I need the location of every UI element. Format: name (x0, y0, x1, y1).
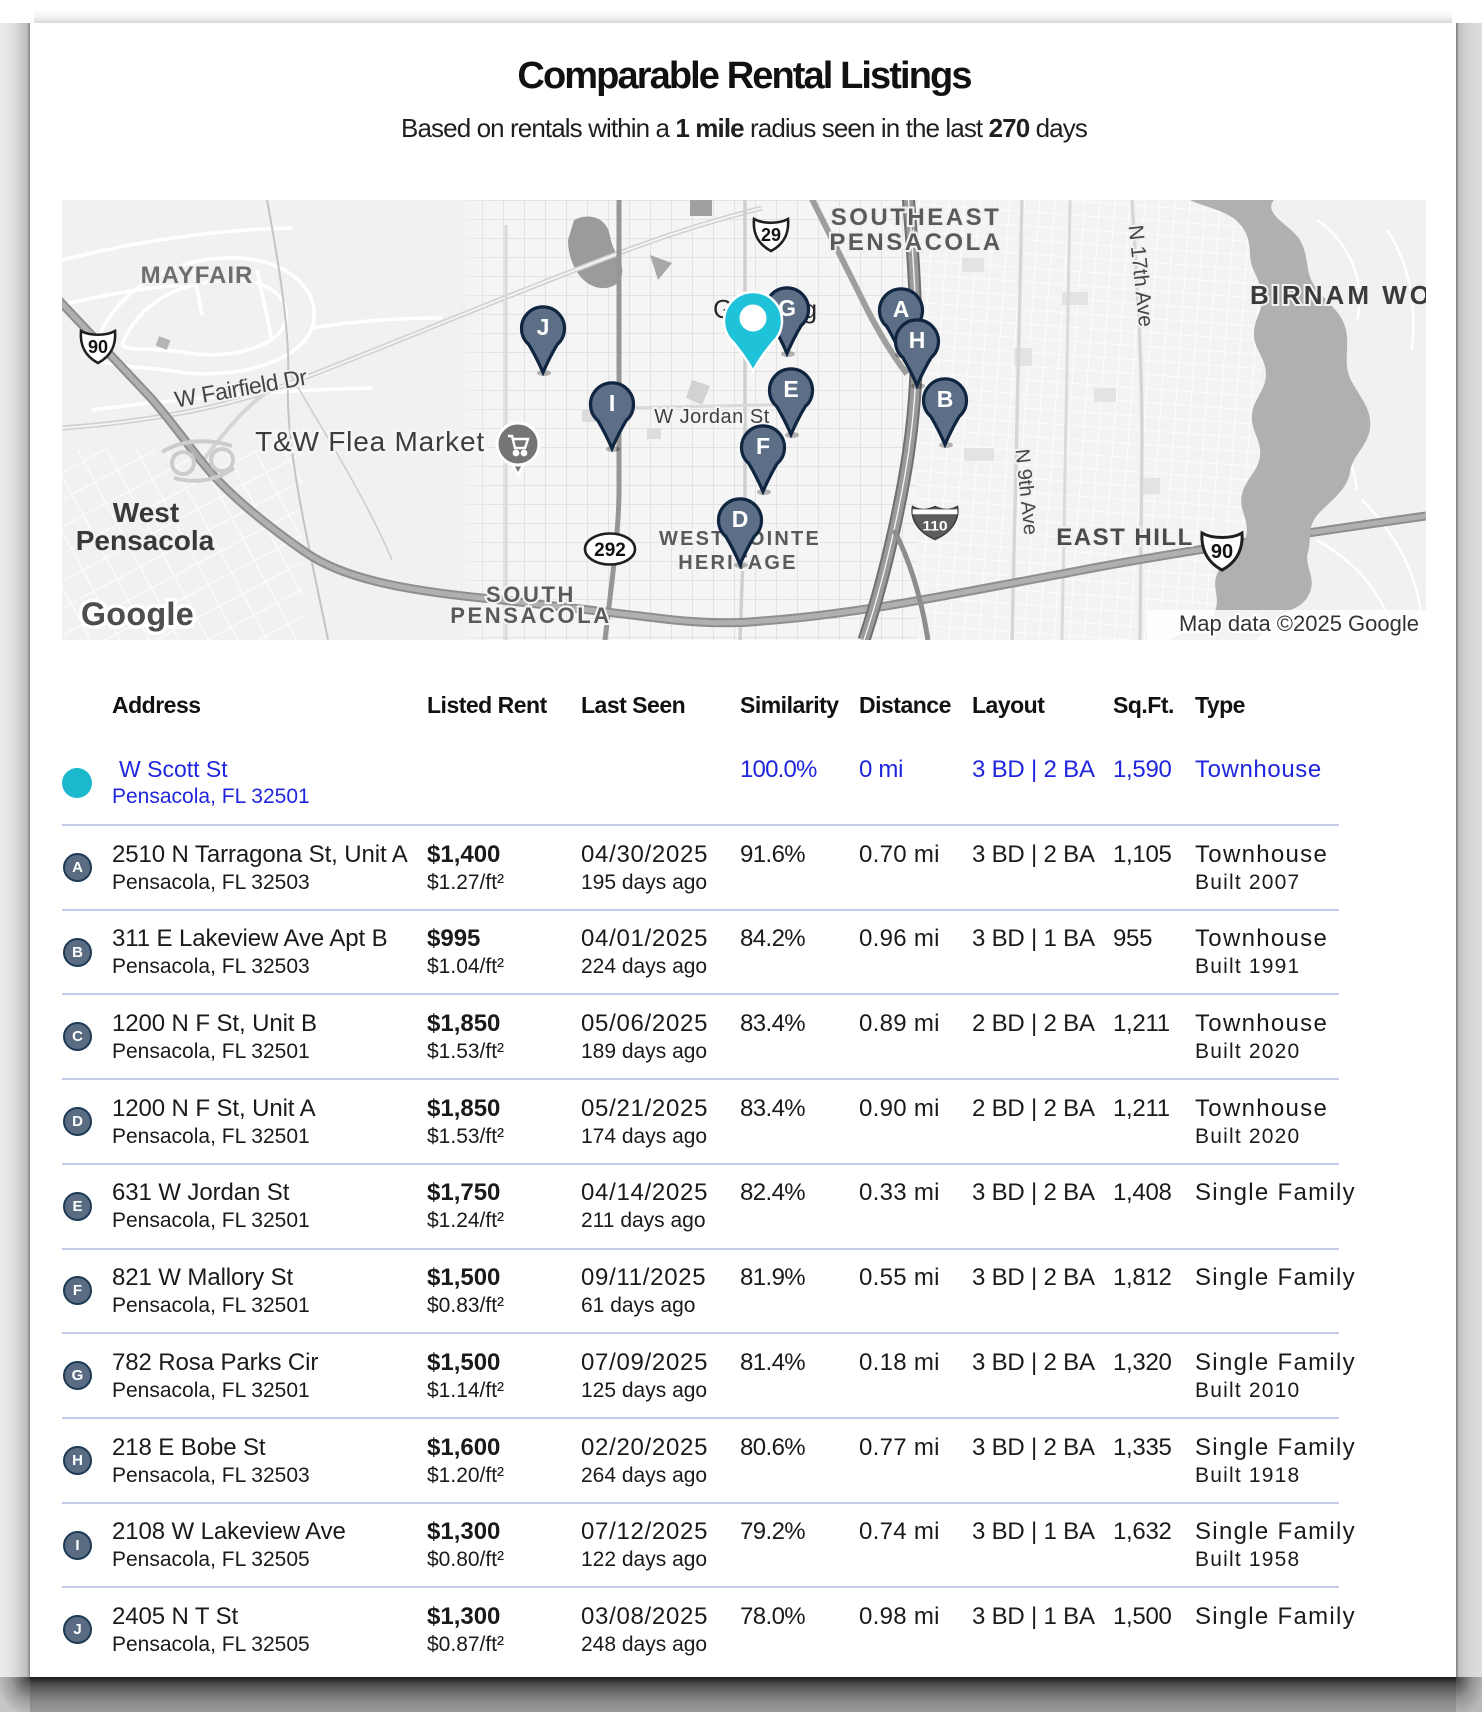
svg-text:B: B (937, 386, 954, 412)
svg-text:292: 292 (594, 540, 626, 561)
svg-text:PENSACOLA: PENSACOLA (829, 229, 1002, 256)
svg-text:SOUTHEAST: SOUTHEAST (831, 204, 1002, 231)
svg-text:110: 110 (922, 520, 947, 535)
svg-text:EAST HILL: EAST HILL (1056, 524, 1194, 551)
svg-text:MAYFAIR: MAYFAIR (141, 262, 254, 289)
svg-text:J: J (537, 314, 550, 340)
svg-text:BIRNAM WOOD: BIRNAM WOOD (1250, 280, 1426, 310)
svg-text:90: 90 (1211, 541, 1233, 563)
svg-text:Pensacola: Pensacola (76, 525, 215, 556)
svg-text:H: H (909, 327, 926, 353)
svg-text:Google: Google (81, 596, 194, 632)
svg-text:A: A (893, 296, 910, 322)
svg-text:W Jordan St: W Jordan St (654, 406, 770, 428)
svg-text:PENSACOLA: PENSACOLA (450, 603, 612, 628)
svg-text:T&W Flea Market: T&W Flea Market (255, 426, 485, 457)
svg-text:90: 90 (88, 337, 108, 357)
svg-text:F: F (756, 433, 770, 459)
svg-text:Map data ©2025 Google: Map data ©2025 Google (1179, 611, 1419, 636)
svg-text:D: D (732, 506, 749, 532)
svg-text:E: E (783, 376, 798, 402)
svg-text:29: 29 (761, 225, 781, 245)
svg-text:I: I (609, 390, 615, 416)
svg-text:West: West (113, 497, 179, 528)
